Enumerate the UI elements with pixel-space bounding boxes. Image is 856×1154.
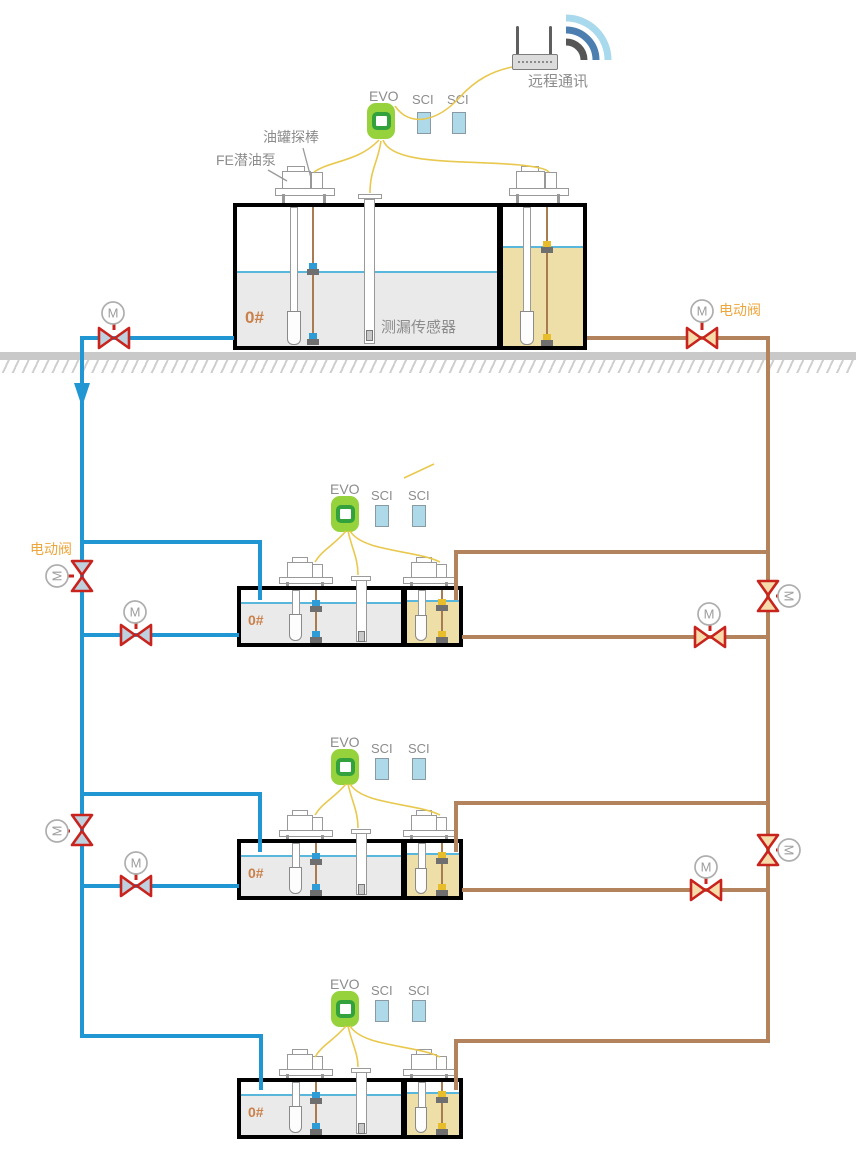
- flow-arrow: [74, 383, 90, 407]
- signal-wire: [315, 784, 346, 815]
- label-leader-line: [268, 170, 287, 181]
- return-pipe-branch: [456, 803, 768, 852]
- label-leader-line: [303, 148, 311, 178]
- motor-valve-icon: [687, 328, 717, 348]
- motor-valve-icon: [758, 835, 778, 865]
- motor-indicator: [695, 856, 717, 878]
- motor-indicator: [698, 603, 720, 625]
- motor-valve-icon: [72, 561, 92, 591]
- signal-wire: [315, 531, 346, 562]
- signal-wire: [350, 531, 440, 562]
- supply-pipe-main: [82, 338, 261, 1090]
- signal-wire: [350, 784, 440, 815]
- supply-pipe-branch: [82, 542, 260, 600]
- motor-indicator: [778, 585, 800, 607]
- motor-indicator: [125, 852, 147, 874]
- return-pipe-branch: [456, 552, 768, 600]
- return-pipe-main: [456, 338, 768, 1090]
- motor-indicator: [102, 302, 124, 324]
- signal-wire: [350, 1026, 440, 1057]
- signal-wire: [314, 140, 379, 172]
- piping-layer: M: [0, 0, 856, 1154]
- signal-wire: [370, 141, 381, 193]
- motor-indicator: [46, 820, 68, 842]
- diagram-canvas: 远程通讯 0# 测漏传感器: [0, 0, 856, 1154]
- motor-indicator: [691, 300, 713, 322]
- wifi-arc-inner: [566, 42, 584, 60]
- motor-valve-icon: [758, 581, 778, 611]
- valve-stems: [62, 322, 784, 884]
- motor-indicator: [778, 839, 800, 861]
- motor-valve-icon: [99, 328, 129, 348]
- motor-valve-icon: [72, 815, 92, 845]
- supply-pipe-branch: [82, 794, 260, 852]
- signal-wire: [315, 1026, 346, 1057]
- motor-indicator: [46, 565, 68, 587]
- signal-wire: [383, 140, 549, 172]
- signal-wire-router: [395, 67, 512, 119]
- motor-indicator: [124, 601, 146, 623]
- signal-wire-stub: [404, 464, 434, 478]
